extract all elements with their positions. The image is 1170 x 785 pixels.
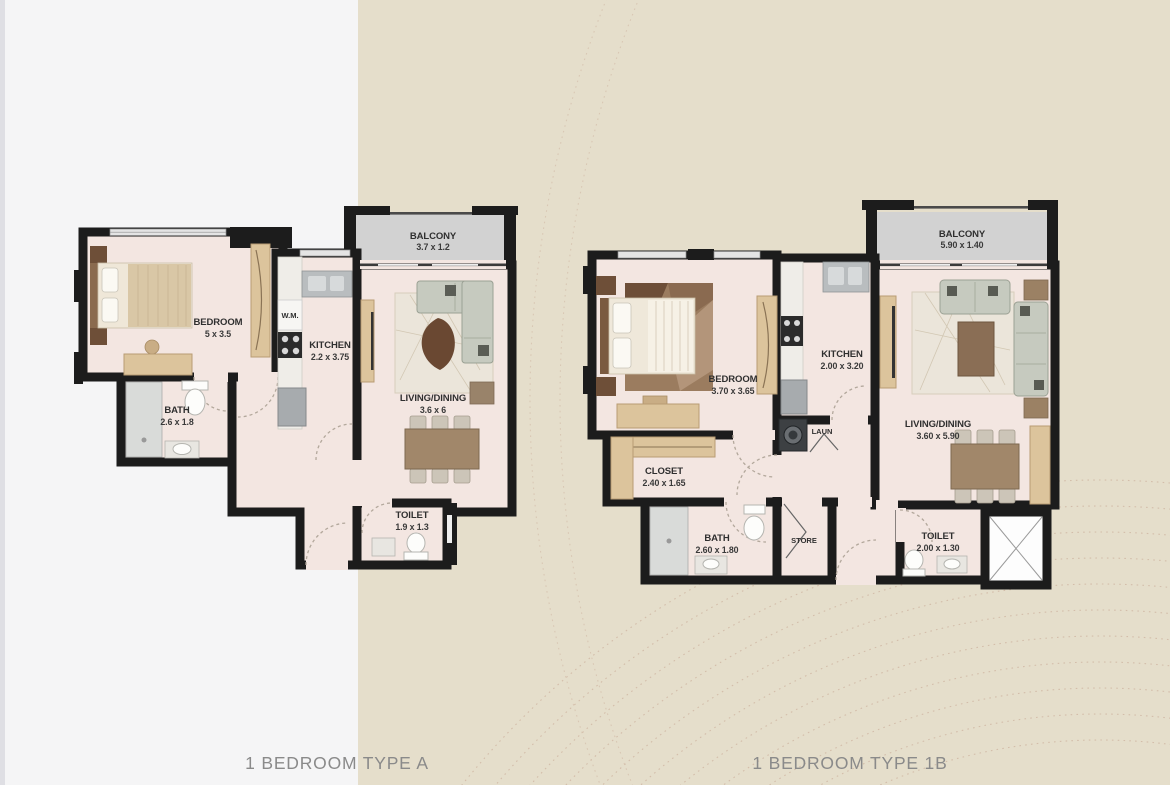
floorplan-canvas: BALCONY 3.7 x 1.2 BEDROOM 5 x 3.5 KITCHE… <box>0 0 1170 785</box>
plan-b-bedroom-label: BEDROOM <box>709 374 758 385</box>
plan-b-title: 1 BEDROOM TYPE 1B <box>752 753 947 773</box>
plan-b-shaft <box>985 512 1047 585</box>
plan-a-stove <box>278 332 302 358</box>
plan-b-living-dims: 3.60 x 5.90 <box>917 431 960 441</box>
plan-a-toilet-label: TOILET <box>395 510 428 521</box>
plan-b-bath-label: BATH <box>704 533 730 544</box>
plan-b-wc-label: TOILET <box>921 531 954 542</box>
plan-a-balcony-dims: 3.7 x 1.2 <box>416 242 450 252</box>
plan-a-wardrobe <box>251 244 270 357</box>
page-left-edge <box>0 0 5 785</box>
plan-a-bath-sink <box>165 441 199 458</box>
plan-b-side-table-bottom <box>1024 398 1048 418</box>
plan-b-balcony-dims: 5.90 x 1.40 <box>941 240 984 250</box>
plan-a-bath-label: BATH <box>164 405 190 416</box>
plan-b-dining-set <box>951 430 1019 503</box>
plan-b-side-table-top <box>1024 280 1048 300</box>
plan-a-bedroom-dims: 5 x 3.5 <box>205 329 231 339</box>
plan-a-kitchen-label: KITCHEN <box>309 340 351 351</box>
plan-b-fridge <box>781 380 807 414</box>
plan-b-balcony-label: BALCONY <box>939 229 986 240</box>
plan-b-stove <box>781 316 803 346</box>
plan-a-bedroom-label: BEDROOM <box>194 317 243 328</box>
plan-a-kitchen-dims: 2.2 x 3.75 <box>311 352 349 362</box>
plan-a-ottoman <box>470 382 494 404</box>
plan-a-wm-label: W.M. <box>281 311 298 320</box>
plan-b-living-label: LIVING/DINING <box>905 419 971 430</box>
plan-b-console <box>1030 426 1050 504</box>
plan-a-bath-dims: 2.6 x 1.8 <box>160 417 194 427</box>
floorplan-brochure-page: BALCONY 3.7 x 1.2 BEDROOM 5 x 3.5 KITCHE… <box>0 0 1170 785</box>
plan-b-bath-sink <box>695 556 727 574</box>
plan-b-tv-unit <box>880 296 896 388</box>
plan-a-fridge <box>278 388 306 426</box>
plan-b-balcony-slider <box>880 264 1047 267</box>
plan-b-sofa-right <box>1014 302 1048 396</box>
plan-b-wardrobe <box>757 296 777 394</box>
plan-b-bath-toilet <box>744 505 765 540</box>
plan-b-hall-floor <box>832 502 900 580</box>
plan-a-dining-set <box>405 416 479 483</box>
plan-a-tv-unit <box>361 300 374 382</box>
plan-b-wc-dims: 2.00 x 1.30 <box>917 543 960 553</box>
plan-b-kitchen-sink <box>823 262 869 292</box>
plan-b-bedroom-dims: 3.70 x 3.65 <box>712 386 755 396</box>
plan-a-toilet-dims: 1.9 x 1.3 <box>395 522 429 532</box>
plan-b: BALCONY 5.90 x 1.40 BEDROOM 3.70 x 3.65 … <box>583 200 1058 585</box>
plan-b-kitchen-label: KITCHEN <box>821 349 863 360</box>
plan-b-washing-machine <box>779 419 807 451</box>
plan-a-living-dims: 3.6 x 6 <box>420 405 446 415</box>
plan-a-balcony-label: BALCONY <box>410 231 457 242</box>
plan-a-kitchen-sink <box>302 271 352 297</box>
plan-b-bath-dims: 2.60 x 1.80 <box>696 545 739 555</box>
plan-a-living-label: LIVING/DINING <box>400 393 466 404</box>
plan-a-balcony-slider <box>360 264 506 267</box>
plan-a-shower <box>126 382 162 457</box>
plan-b-sofa-top <box>940 280 1010 314</box>
plan-b-shower <box>650 507 688 575</box>
plan-b-closet-label: CLOSET <box>645 466 683 477</box>
plan-b-store-label: STORE <box>791 536 817 545</box>
plan-b-laundry-label: LAUN <box>812 427 833 436</box>
plan-b-closet-dims: 2.40 x 1.65 <box>643 478 686 488</box>
plan-b-coffee-table <box>958 322 994 376</box>
plan-a-title: 1 BEDROOM TYPE A <box>245 753 429 773</box>
plan-b-kitchen-dims: 2.00 x 3.20 <box>821 361 864 371</box>
